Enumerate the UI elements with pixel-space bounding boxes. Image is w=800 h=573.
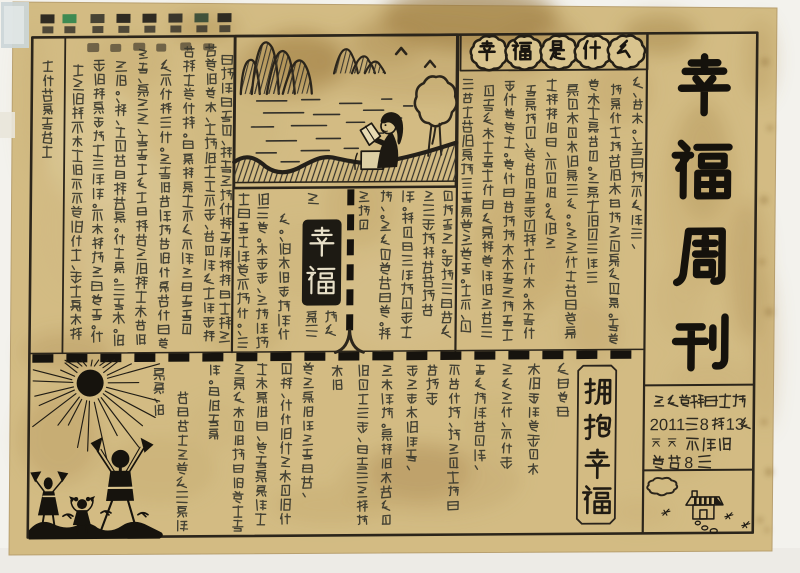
svg-text:8: 8	[700, 416, 709, 434]
svg-text:8: 8	[684, 455, 693, 472]
svg-text:13: 13	[726, 416, 745, 434]
svg-text:2011: 2011	[650, 416, 686, 434]
